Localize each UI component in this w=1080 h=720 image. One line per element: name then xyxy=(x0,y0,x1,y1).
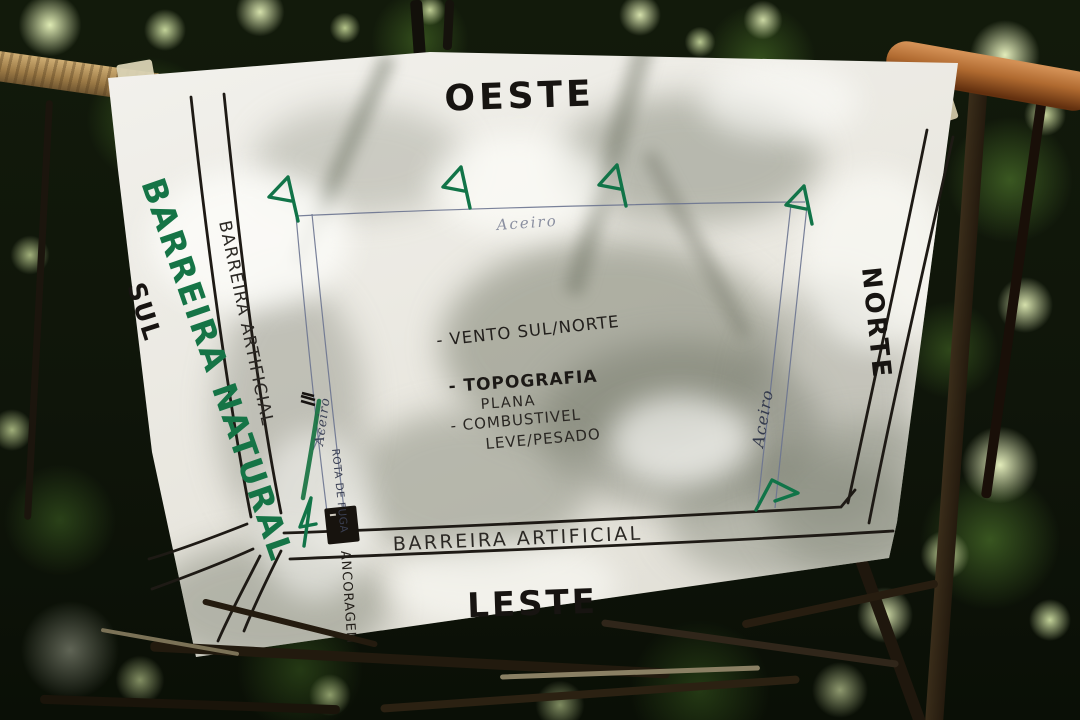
cardinal-north-label: NORTE xyxy=(855,266,897,382)
firebreak-right-label: Aceiro xyxy=(748,388,777,451)
wind-note: - VENTO SUL/NORTE xyxy=(435,312,620,350)
anchor-point-label: ANCORAGEM xyxy=(337,550,358,644)
topography-note-label: - TOPOGRAFIA xyxy=(448,367,598,397)
firebreak-lines xyxy=(296,202,807,512)
firebreak-right-line xyxy=(775,206,807,508)
ink-scribble xyxy=(301,393,315,405)
firebreak-right-line xyxy=(758,204,791,503)
flag-icon xyxy=(599,165,626,206)
flag-icon xyxy=(443,167,470,208)
forest-photo-scene: OESTE LESTE NORTE SUL BARREIRA NATURAL B… xyxy=(0,0,1080,720)
southwest-branch-line xyxy=(152,549,253,589)
south-branch-line xyxy=(218,556,260,641)
firebreak-left-line xyxy=(296,216,327,512)
cardinal-west-label: OESTE xyxy=(444,73,596,119)
southwest-branch-line xyxy=(149,524,247,559)
flag-icon xyxy=(269,177,298,221)
firebreak-top-label: Aceiro xyxy=(494,212,558,234)
anchor-square-glint xyxy=(330,515,336,516)
cardinal-east-label: LESTE xyxy=(467,582,599,627)
cardinal-south-label: SUL xyxy=(121,279,167,345)
flag-icon xyxy=(300,498,316,546)
hand-drawn-map: OESTE LESTE NORTE SUL BARREIRA NATURAL B… xyxy=(0,0,1080,720)
